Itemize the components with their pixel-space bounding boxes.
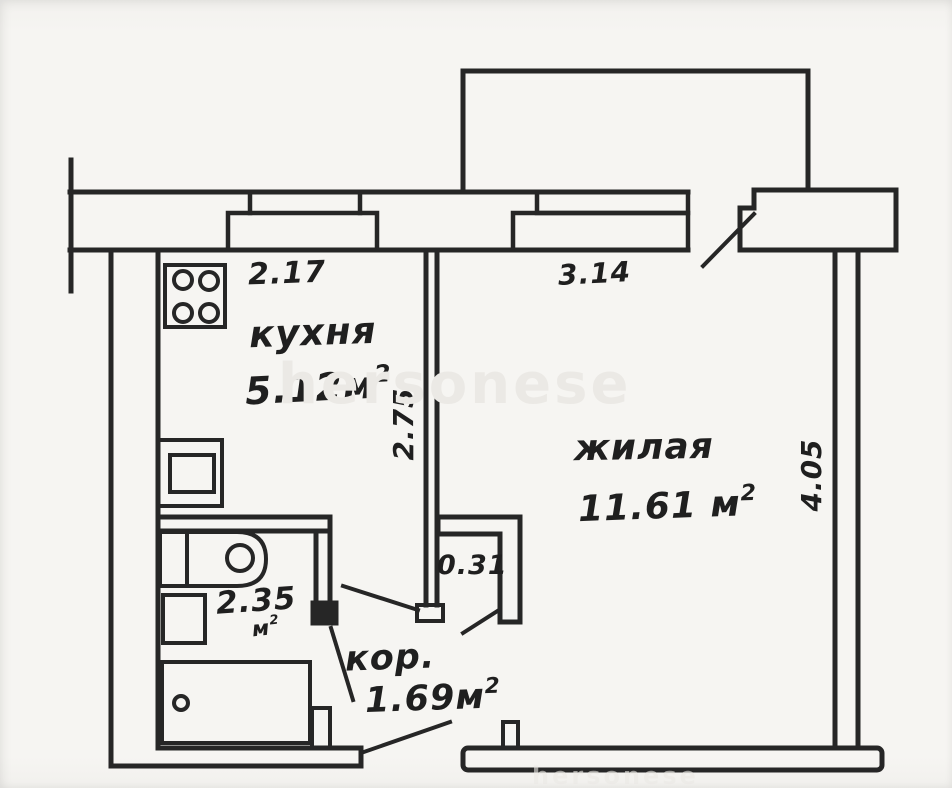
living-door-swing [463, 610, 499, 633]
wall-bottom-left-bar [111, 748, 361, 766]
entrance-pier-stub [503, 722, 518, 748]
kitchen-depth-dimension: 2.75 [390, 384, 418, 464]
corridor-room-label: кор. [344, 639, 435, 677]
kitchen-sink-icon [158, 440, 222, 506]
living-window-sill [513, 213, 688, 250]
bathroom-right-wall [316, 531, 330, 607]
balcony-door-swing [703, 214, 754, 266]
wall-bottom-living-bar [463, 748, 882, 770]
corridor-niche-dimension: 0.31 [437, 552, 508, 579]
living-area-value: 11.61 м [577, 483, 741, 530]
floor-plan-page: 2.17 кухня 5.12м2 3.14 жилая 11.61 м2 4.… [0, 0, 952, 788]
bathroom-area-unit: м2 [251, 616, 280, 641]
living-window-frame [537, 192, 688, 213]
stove-icon [165, 265, 225, 327]
kitchen-window [228, 213, 377, 250]
kitchen-area-value: 5.12м [244, 363, 376, 414]
kitchen-area-sup: 2 [373, 359, 391, 388]
entrance-door-swing [361, 722, 450, 753]
kitchen-width-dimension: 2.17 [248, 258, 327, 291]
closet-icon [162, 662, 310, 743]
bathroom-unit-sup: 2 [269, 613, 280, 629]
corridor-closet-stub [312, 708, 330, 748]
corridor-area-label: 1.69м2 [364, 678, 500, 719]
wall-right-top-segment [740, 190, 896, 250]
living-area-label: 11.61 м2 [577, 484, 757, 528]
bathtub-icon [160, 532, 266, 586]
bathroom-area-label: 2.35 [215, 583, 297, 620]
balcony-outline [463, 71, 808, 192]
windows [228, 192, 688, 250]
kitchen-door-swing [343, 586, 418, 610]
washbasin-icon [163, 595, 205, 643]
corridor-area-sup: 2 [484, 674, 500, 700]
kitchen-room-label: кухня [248, 312, 377, 353]
bathroom-top-wall [158, 517, 330, 531]
corridor-area-value: 1.69м [364, 677, 485, 721]
living-width-dimension: 3.14 [557, 258, 631, 290]
kitchen-area-label: 5.12м2 [244, 364, 392, 410]
living-area-sup: 2 [740, 480, 756, 507]
living-depth-dimension: 4.05 [798, 435, 826, 515]
bathroom-door-jamb [313, 603, 336, 623]
living-room-label: жилая [574, 429, 714, 467]
floor-plan-drawing [0, 0, 952, 788]
